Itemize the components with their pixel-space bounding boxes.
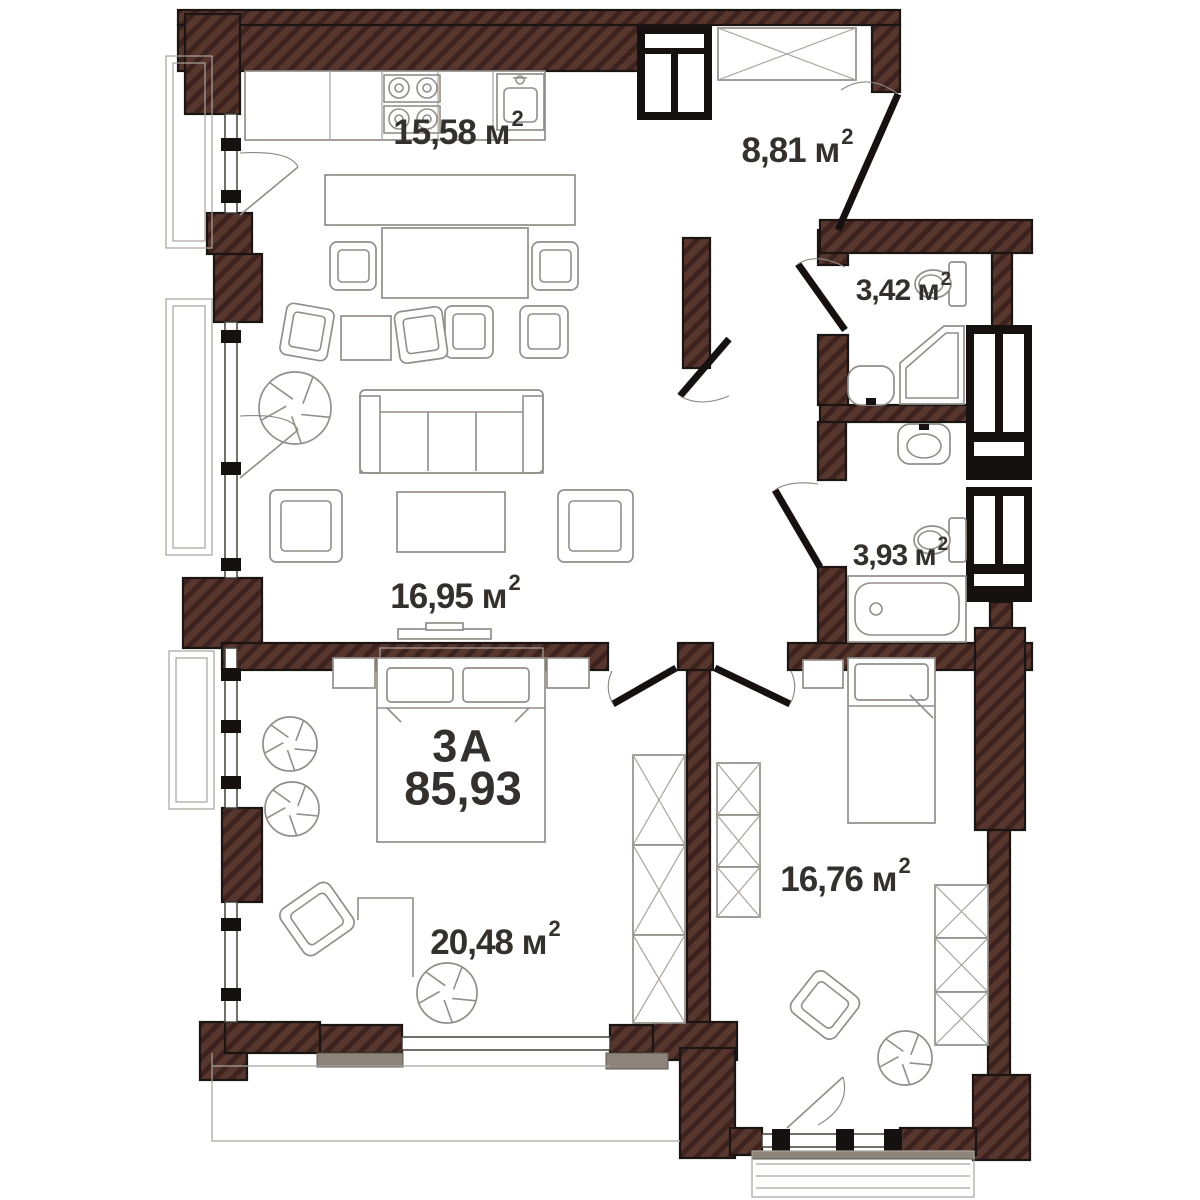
bathroom-large-window-frame xyxy=(966,487,1032,602)
desk-bedroom1 xyxy=(358,898,413,977)
door-bedroom2 xyxy=(715,668,795,704)
balcony-railings-left xyxy=(166,56,214,809)
dining-table xyxy=(382,228,528,298)
room-area-bedroom1: 20,48 м xyxy=(430,923,546,963)
bathtub xyxy=(848,576,966,642)
coffee-table xyxy=(397,492,505,552)
door-bedroom1 xyxy=(608,668,676,704)
unit-label: 3А 85,93 xyxy=(404,726,522,811)
room-area-kitchen: 15,58 м xyxy=(393,113,509,153)
unit-name: 3А xyxy=(404,726,522,767)
bedroom1-balcony xyxy=(212,1053,680,1141)
armchair-bedroom2 xyxy=(787,967,863,1042)
door-bathroom-large xyxy=(775,483,820,567)
room-label-hallway: 8,81 м2 xyxy=(742,131,853,171)
room-label-bedroom2: 16,76 м2 xyxy=(780,860,909,900)
room-label-kitchen: 15,58 м2 xyxy=(393,113,522,153)
floor-plan: 15,58 м2 8,81 м2 3,42 м2 3,93 м2 16,95 м… xyxy=(0,0,1200,1200)
plant-bedroom1-b xyxy=(265,782,319,836)
door-bathroom-small xyxy=(798,259,845,330)
room-area-bedroom2: 16,76 м xyxy=(780,860,896,900)
room-label-living: 16,95 м2 xyxy=(390,577,519,617)
room-area-bathroom-small: 3,42 м xyxy=(856,274,939,308)
reading-chairs xyxy=(279,302,449,364)
corner-shower xyxy=(900,326,964,404)
balcony-door-swing-bedroom2 xyxy=(787,1077,845,1128)
armchair-right xyxy=(558,490,633,562)
floor-plan-drawing xyxy=(0,0,1200,1200)
single-bed xyxy=(803,658,935,823)
kitchen-hall-window-frame xyxy=(637,26,712,120)
wardrobe-bedroom1 xyxy=(633,755,685,1023)
plant-bedroom1-a xyxy=(263,717,317,771)
sofa xyxy=(360,390,543,473)
room-area-hallway: 8,81 м xyxy=(742,131,840,171)
room-area-bathroom-large: 3,93 м xyxy=(853,539,936,573)
wardrobe-bedroom2-left xyxy=(717,763,760,917)
plant-bedroom2 xyxy=(878,1031,932,1085)
armchair-left xyxy=(270,490,342,562)
room-label-bathroom-large: 3,93 м2 xyxy=(853,539,948,573)
washbasin-large-bath xyxy=(898,424,950,464)
bathroom-small-window-frame xyxy=(966,325,1032,480)
sink-small-bath xyxy=(848,366,894,405)
room-label-bathroom-small: 3,42 м2 xyxy=(856,274,951,308)
plant-bedroom1-c xyxy=(417,963,477,1023)
french-door-kitchen xyxy=(240,153,298,215)
tv-console xyxy=(398,623,491,639)
unit-total-area: 85,93 xyxy=(404,767,522,810)
wardrobe-bedroom2-right xyxy=(935,885,988,1045)
armchair-bedroom1 xyxy=(276,879,357,959)
room-label-bedroom1: 20,48 м2 xyxy=(430,923,559,963)
bedroom1-window xyxy=(402,1037,610,1050)
bedroom2-window xyxy=(762,1129,902,1151)
dining-island xyxy=(325,175,575,225)
hall-wardrobe xyxy=(718,28,856,80)
room-area-living: 16,95 м xyxy=(390,577,506,617)
